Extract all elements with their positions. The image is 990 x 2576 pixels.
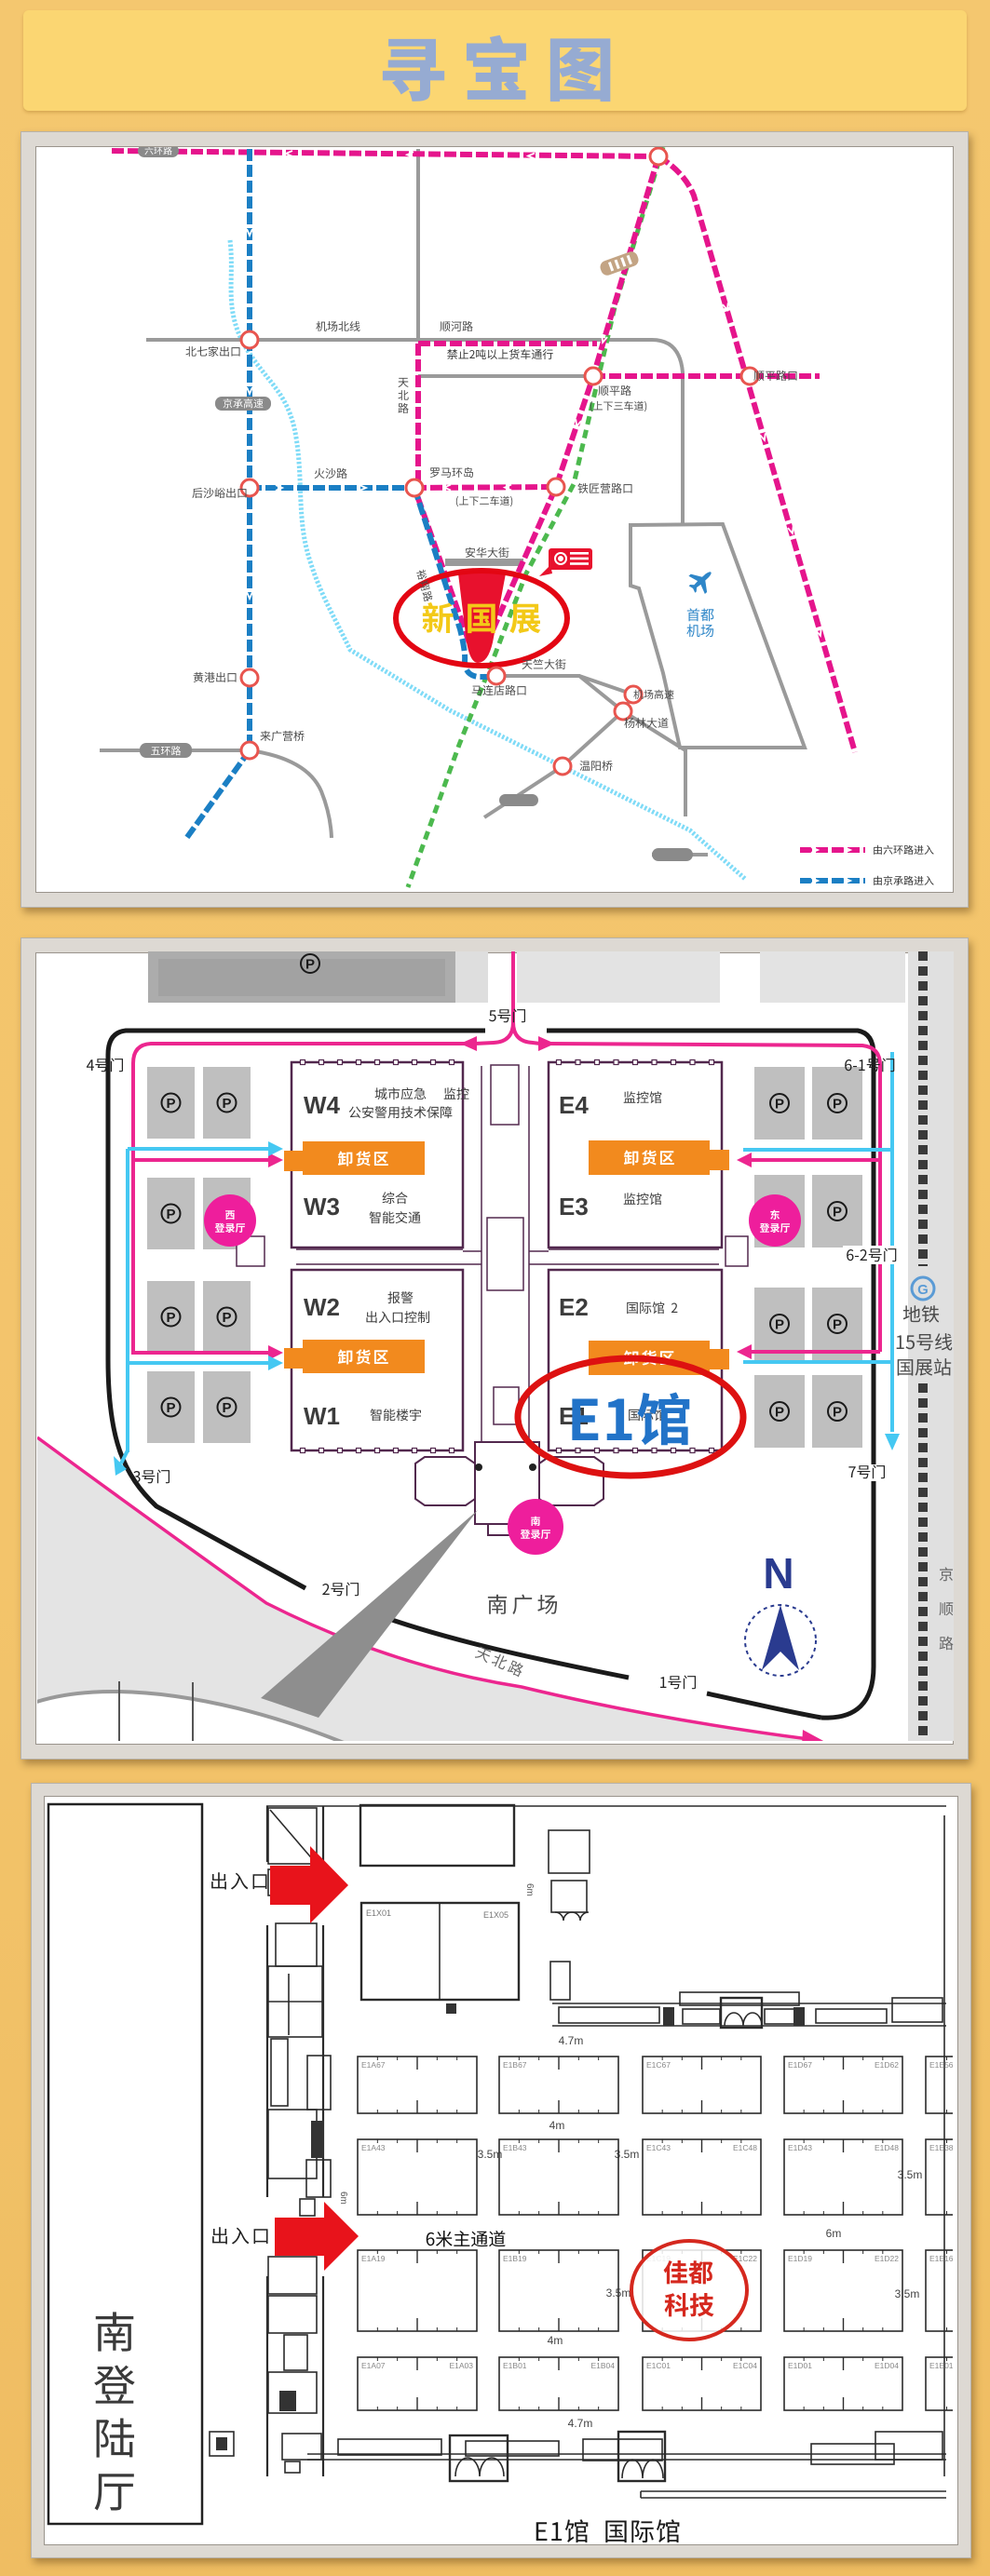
svg-text:E1E38: E1E38 xyxy=(929,2143,953,2152)
svg-text:E1X01: E1X01 xyxy=(366,1908,391,1918)
svg-text:W2: W2 xyxy=(304,1293,340,1321)
svg-text:E1B67: E1B67 xyxy=(503,2060,527,2070)
svg-text:P: P xyxy=(166,1207,175,1222)
svg-text:E1E01: E1E01 xyxy=(929,2361,953,2370)
svg-text:P: P xyxy=(775,1317,784,1333)
svg-text:E1A43: E1A43 xyxy=(361,2143,386,2152)
svg-text:3.5m: 3.5m xyxy=(898,2168,923,2181)
svg-text:E1D22: E1D22 xyxy=(875,2254,899,2263)
svg-text:E2: E2 xyxy=(559,1293,589,1321)
svg-text:E3: E3 xyxy=(559,1193,589,1221)
svg-text:E1B19: E1B19 xyxy=(503,2254,527,2263)
svg-text:P: P xyxy=(833,1205,842,1221)
svg-text:E1D19: E1D19 xyxy=(788,2254,812,2263)
svg-text:P: P xyxy=(166,1400,175,1416)
svg-text:E1C48: E1C48 xyxy=(733,2143,757,2152)
svg-text:W4: W4 xyxy=(304,1091,341,1119)
svg-text:E1C01: E1C01 xyxy=(646,2361,671,2370)
svg-text:W1: W1 xyxy=(304,1402,340,1430)
svg-text:6m: 6m xyxy=(524,1883,535,1896)
svg-text:E1D67: E1D67 xyxy=(788,2060,812,2070)
svg-text:P: P xyxy=(222,1310,231,1326)
svg-text:6m: 6m xyxy=(826,2227,842,2240)
svg-text:E1A07: E1A07 xyxy=(361,2361,386,2370)
svg-text:4m: 4m xyxy=(549,2119,565,2132)
svg-text:P: P xyxy=(833,1097,842,1113)
svg-text:6m: 6m xyxy=(338,2192,348,2205)
svg-text:E1B43: E1B43 xyxy=(503,2143,527,2152)
svg-text:P: P xyxy=(775,1405,784,1421)
svg-text:P: P xyxy=(222,1400,231,1416)
svg-text:W3: W3 xyxy=(304,1193,340,1221)
svg-text:4m: 4m xyxy=(548,2334,563,2347)
svg-text:P: P xyxy=(833,1317,842,1333)
svg-text:N: N xyxy=(763,1549,793,1598)
svg-text:3.5m: 3.5m xyxy=(895,2287,920,2300)
svg-text:E1D43: E1D43 xyxy=(788,2143,812,2152)
svg-text:P: P xyxy=(305,957,315,973)
svg-text:G: G xyxy=(917,1282,929,1298)
svg-text:E1C04: E1C04 xyxy=(733,2361,757,2370)
svg-text:E4: E4 xyxy=(559,1091,589,1119)
svg-text:E1B01: E1B01 xyxy=(503,2361,527,2370)
svg-text:E1D01: E1D01 xyxy=(788,2361,812,2370)
svg-text:E1X05: E1X05 xyxy=(483,1910,509,1920)
svg-text:E1E56: E1E56 xyxy=(929,2060,953,2070)
svg-text:E1B04: E1B04 xyxy=(590,2361,615,2370)
svg-text:E1D04: E1D04 xyxy=(875,2361,899,2370)
svg-text:P: P xyxy=(222,1096,231,1112)
svg-text:E1A67: E1A67 xyxy=(361,2060,386,2070)
svg-text:4.7m: 4.7m xyxy=(559,2034,584,2047)
svg-text:P: P xyxy=(166,1310,175,1326)
svg-text:E1D48: E1D48 xyxy=(875,2143,899,2152)
svg-text:E1C67: E1C67 xyxy=(646,2060,671,2070)
svg-text:E1A03: E1A03 xyxy=(449,2361,473,2370)
svg-text:P: P xyxy=(775,1097,784,1113)
svg-text:P: P xyxy=(833,1405,842,1421)
svg-text:E1A19: E1A19 xyxy=(361,2254,386,2263)
svg-text:E1C43: E1C43 xyxy=(646,2143,671,2152)
svg-text:E1D62: E1D62 xyxy=(875,2060,899,2070)
svg-text:P: P xyxy=(166,1096,175,1112)
svg-text:4.7m: 4.7m xyxy=(568,2417,593,2430)
svg-text:E1E16: E1E16 xyxy=(929,2254,953,2263)
